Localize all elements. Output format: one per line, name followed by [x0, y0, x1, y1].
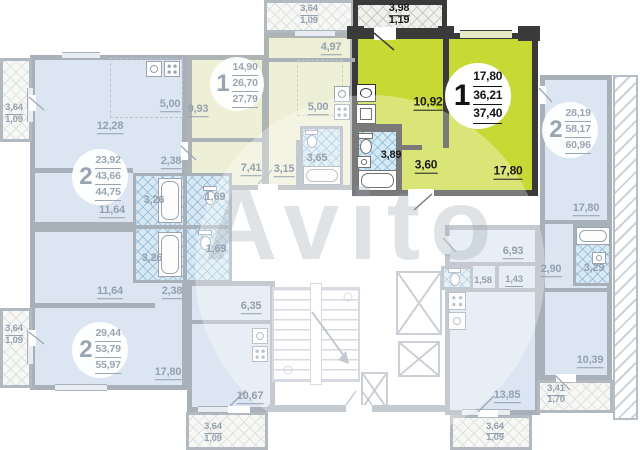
area-label: 1,70 [547, 395, 565, 405]
area-label: 6,93 [503, 246, 524, 258]
door-swings-and-stairs-arrow [0, 0, 640, 450]
area-label: 1,69 [206, 244, 227, 256]
area-label: 2,38 [161, 156, 182, 168]
area-label: 3,64 [5, 324, 23, 334]
area-label: 2,90 [541, 264, 562, 276]
area-label: 3,64 [204, 422, 222, 432]
floor-plan: Avito 3,64 1,09 4,97 3,64 1,09 5,00 9,93… [0, 0, 640, 450]
area-label: 17,80 [155, 367, 182, 379]
area-label-highlighted: 10,92 [413, 96, 442, 109]
area-label: 2,38 [162, 286, 183, 298]
area-label: 11,64 [97, 286, 123, 298]
area-label-highlighted: 3,89 [381, 150, 402, 162]
area-label: 3,64 [5, 103, 23, 113]
area-label-highlighted: 17,80 [493, 165, 522, 178]
area-label: 1,09 [5, 115, 23, 125]
unit-summary-lower-left: 2 29,4453,7955,97 [72, 322, 128, 378]
area-label: 1,09 [486, 433, 504, 443]
area-label: 9,93 [188, 104, 209, 116]
area-label-highlighted: 1,19 [389, 15, 410, 27]
unit-rooms-count: 2 [79, 336, 92, 364]
area-label: 4,97 [321, 42, 342, 54]
area-label: 1,09 [300, 16, 318, 26]
unit-rooms-count: 2 [79, 163, 92, 191]
area-label: 3,41 [547, 384, 565, 394]
area-label: 3,29 [584, 263, 605, 275]
area-label: 7,41 [241, 163, 262, 175]
area-label: 3,64 [486, 422, 504, 432]
area-label: 1,09 [5, 336, 23, 346]
area-label: 3,65 [307, 153, 328, 165]
area-label: 10,67 [237, 391, 264, 403]
area-label: 17,80 [573, 203, 600, 215]
unit-summary-right: 2 28,1958,1760,96 [542, 102, 598, 158]
area-label: 1,69 [205, 192, 226, 204]
area-label: 5,00 [160, 99, 181, 111]
area-label-highlighted: 3,60 [415, 159, 438, 172]
unit-summary-highlighted: 1 17,8036,2137,40 [445, 63, 511, 129]
area-label: 12,28 [97, 121, 124, 133]
area-label: 5,00 [308, 102, 329, 114]
area-label: 1,09 [204, 434, 222, 444]
area-label: 3,26 [142, 253, 163, 265]
unit-summary-top-middle: 1 14,9026,7027,79 [210, 57, 264, 111]
area-label: 1,58 [474, 276, 492, 286]
area-label: 6,35 [241, 301, 262, 313]
unit-rooms-count: 1 [216, 70, 229, 98]
area-label: 3,26 [144, 195, 165, 207]
area-label: 3,15 [274, 164, 295, 176]
unit-rooms-count: 1 [454, 79, 471, 113]
area-label: 13,85 [494, 390, 521, 402]
area-label: 3,64 [300, 4, 318, 14]
area-label: 10,39 [577, 355, 604, 367]
area-label-highlighted: 3,98 [389, 3, 410, 15]
area-label: 11,64 [99, 205, 125, 217]
unit-rooms-count: 2 [549, 116, 562, 144]
unit-summary-upper-left: 2 23,9243,6644,75 [72, 149, 128, 205]
area-label: 1,43 [505, 275, 523, 285]
